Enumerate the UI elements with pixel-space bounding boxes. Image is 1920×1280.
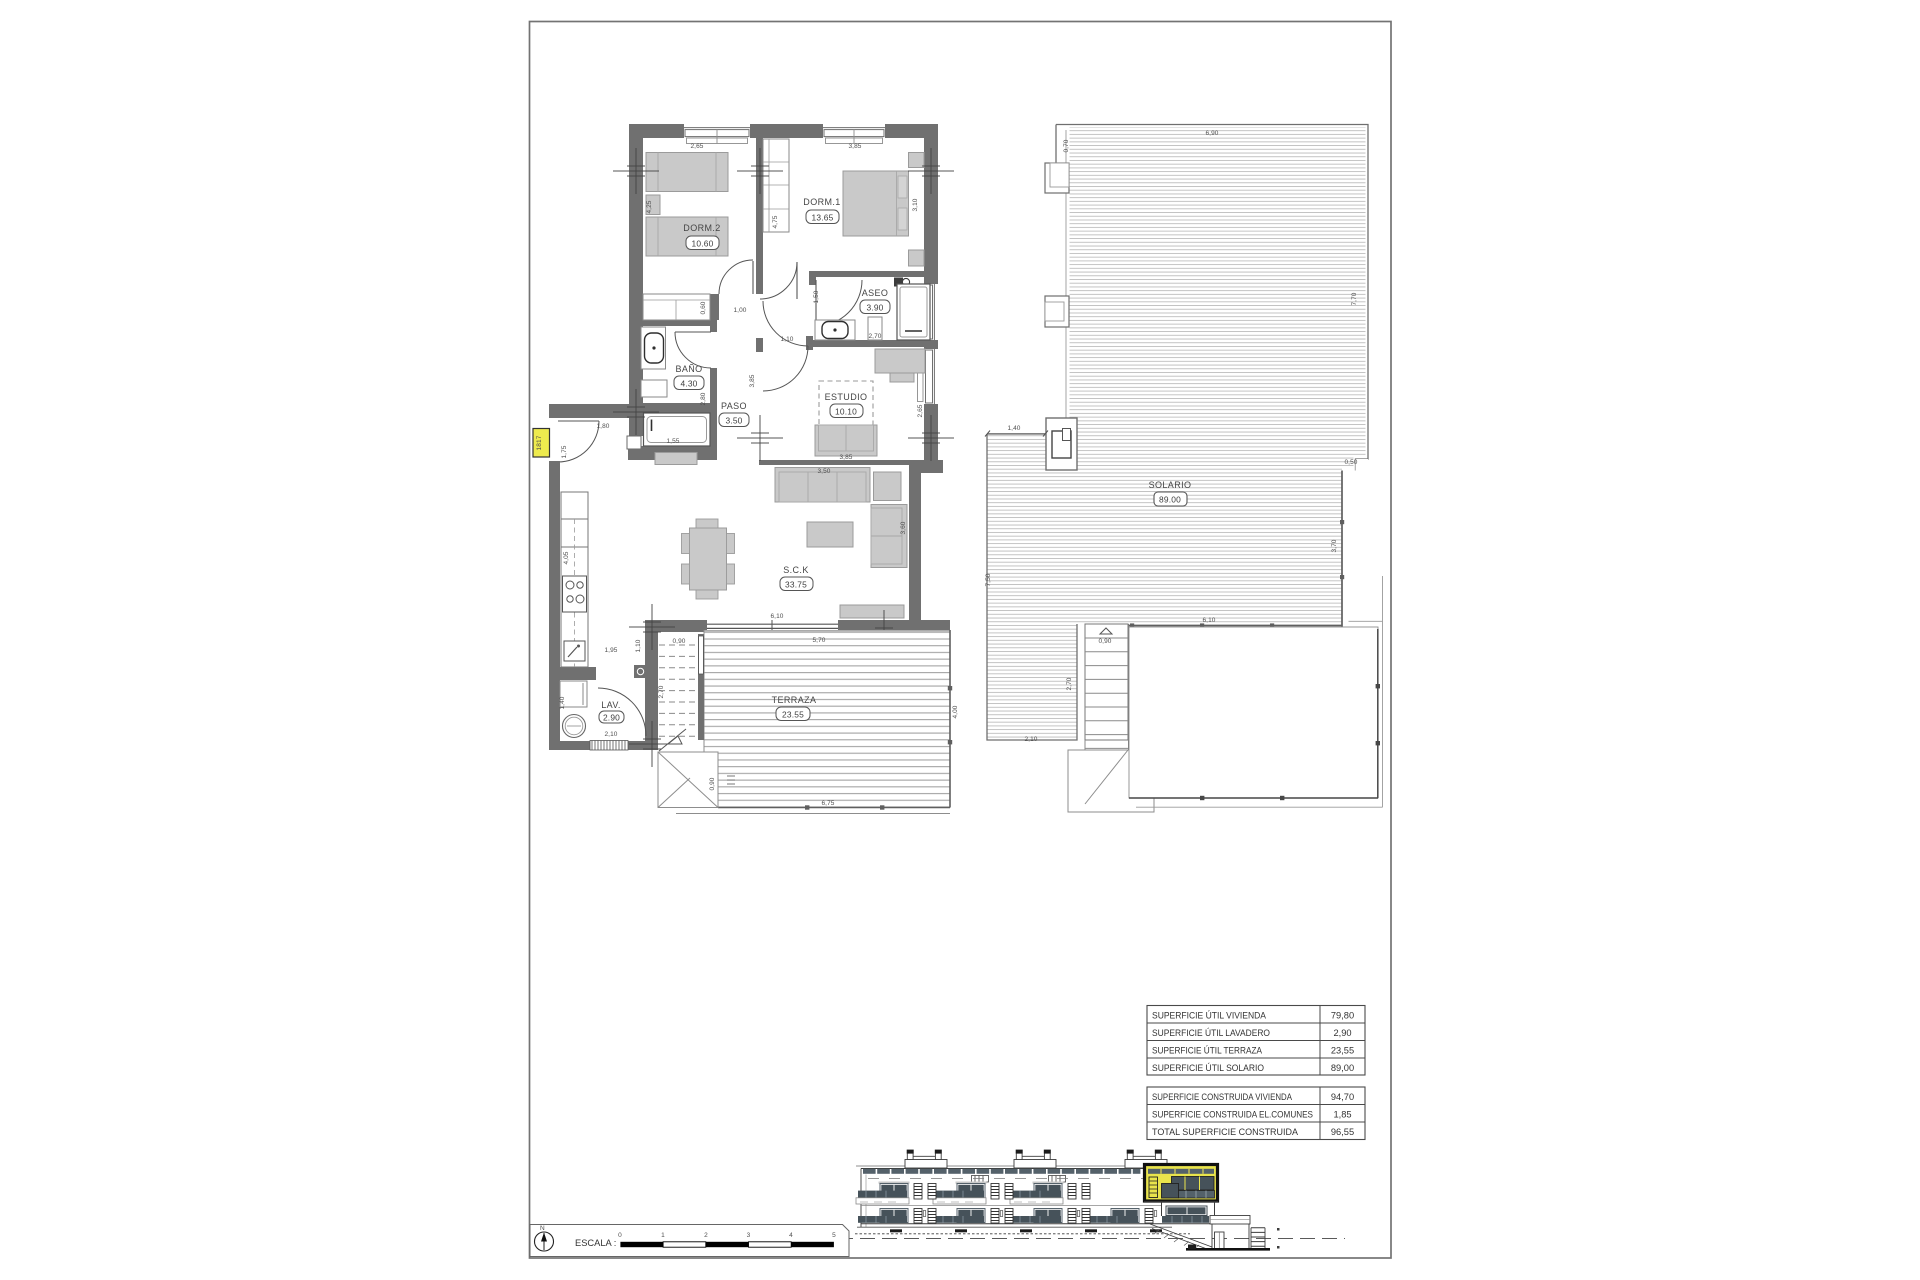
svg-text:3,10: 3,10 (912, 198, 919, 211)
svg-text:PASO: PASO (721, 401, 747, 411)
svg-text:3,85: 3,85 (848, 143, 861, 150)
svg-text:1,00: 1,00 (733, 307, 746, 314)
svg-text:4,75: 4,75 (772, 215, 779, 228)
svg-text:0,60: 0,60 (700, 301, 707, 314)
svg-text:5,70: 5,70 (812, 637, 825, 644)
svg-text:79,80: 79,80 (1331, 1011, 1354, 1021)
svg-text:0,70: 0,70 (1063, 139, 1070, 152)
svg-text:TOTAL SUPERFICIE CONSTRUIDA: TOTAL SUPERFICIE CONSTRUIDA (1152, 1127, 1299, 1137)
svg-text:ESTUDIO: ESTUDIO (825, 392, 868, 402)
svg-text:2,10: 2,10 (1024, 736, 1037, 743)
svg-text:SUPERFICIE ÚTIL LAVADERO: SUPERFICIE ÚTIL LAVADERO (1152, 1028, 1270, 1038)
svg-text:S.C.K: S.C.K (783, 565, 809, 575)
svg-text:2,70: 2,70 (1066, 677, 1073, 690)
svg-text:BAÑO: BAÑO (675, 364, 702, 374)
svg-text:7,50: 7,50 (985, 573, 992, 586)
svg-text:96,55: 96,55 (1331, 1127, 1354, 1137)
svg-text:1,95: 1,95 (604, 647, 617, 654)
svg-text:94,70: 94,70 (1331, 1092, 1354, 1102)
svg-text:DORM.2: DORM.2 (683, 223, 720, 233)
svg-text:0,90: 0,90 (1098, 638, 1111, 645)
svg-text:6,75: 6,75 (821, 800, 834, 807)
svg-text:LAV.: LAV. (601, 700, 621, 710)
svg-text:10.10: 10.10 (835, 407, 857, 417)
svg-text:1817: 1817 (536, 435, 543, 450)
svg-text:1,80: 1,80 (596, 423, 609, 430)
svg-text:2,80: 2,80 (700, 392, 707, 405)
svg-text:0,90: 0,90 (709, 777, 716, 790)
svg-text:89.00: 89.00 (1159, 495, 1181, 505)
svg-text:0: 0 (618, 1232, 622, 1239)
svg-text:ASEO: ASEO (862, 288, 889, 298)
svg-text:4,25: 4,25 (646, 200, 653, 213)
svg-text:10.60: 10.60 (692, 239, 714, 249)
svg-text:7,70: 7,70 (1351, 292, 1358, 305)
svg-text:2,90: 2,90 (1333, 1028, 1351, 1038)
svg-text:1,40: 1,40 (1007, 425, 1020, 432)
svg-text:2,70: 2,70 (658, 685, 665, 698)
svg-text:3,50: 3,50 (817, 468, 830, 475)
svg-text:DORM.1: DORM.1 (803, 197, 840, 207)
svg-text:3,85: 3,85 (839, 454, 852, 461)
svg-text:1,50: 1,50 (813, 290, 820, 303)
svg-text:2,65: 2,65 (690, 143, 703, 150)
svg-text:2,10: 2,10 (604, 731, 617, 738)
svg-text:ESCALA :: ESCALA : (575, 1238, 616, 1248)
svg-text:4: 4 (789, 1232, 793, 1239)
svg-text:0,90: 0,90 (672, 638, 685, 645)
svg-text:N: N (540, 1225, 545, 1232)
svg-text:TERRAZA: TERRAZA (772, 695, 817, 705)
svg-text:33.75: 33.75 (785, 580, 807, 590)
svg-text:6,90: 6,90 (1205, 130, 1218, 137)
svg-text:13.65: 13.65 (812, 213, 834, 223)
svg-text:SUPERFICIE ÚTIL TERRAZA: SUPERFICIE ÚTIL TERRAZA (1152, 1046, 1263, 1056)
svg-text:1,55: 1,55 (666, 438, 679, 445)
svg-text:2.90: 2.90 (603, 713, 620, 723)
svg-text:23,55: 23,55 (1331, 1046, 1354, 1056)
svg-text:5: 5 (832, 1232, 836, 1239)
svg-text:1,85: 1,85 (1333, 1110, 1351, 1120)
svg-text:23.55: 23.55 (782, 710, 804, 720)
svg-text:2,65: 2,65 (917, 404, 924, 417)
svg-text:6,10: 6,10 (1202, 617, 1215, 624)
svg-text:1,40: 1,40 (559, 696, 566, 709)
svg-text:3.50: 3.50 (725, 416, 742, 426)
svg-text:SOLARIO: SOLARIO (1149, 480, 1192, 490)
svg-text:SUPERFICIE CONSTRUIDA EL.COMUN: SUPERFICIE CONSTRUIDA EL.COMUNES (1152, 1110, 1313, 1120)
svg-text:3,70: 3,70 (1331, 539, 1338, 552)
svg-text:89,00: 89,00 (1331, 1063, 1354, 1073)
svg-text:6,10: 6,10 (770, 613, 783, 620)
svg-text:0,50: 0,50 (1344, 459, 1357, 466)
svg-text:1,10: 1,10 (635, 639, 642, 652)
svg-text:3,85: 3,85 (749, 374, 756, 387)
svg-text:3,60: 3,60 (900, 521, 907, 534)
svg-text:3.90: 3.90 (866, 303, 883, 313)
svg-text:1,10: 1,10 (780, 336, 793, 343)
svg-text:SUPERFICIE CONSTRUIDA VIVIENDA: SUPERFICIE CONSTRUIDA VIVIENDA (1152, 1092, 1293, 1102)
svg-text:4,00: 4,00 (952, 705, 959, 718)
svg-text:1,75: 1,75 (561, 445, 568, 458)
svg-text:2: 2 (704, 1232, 708, 1239)
svg-text:SUPERFICIE ÚTIL VIVIENDA: SUPERFICIE ÚTIL VIVIENDA (1152, 1011, 1267, 1021)
svg-text:SUPERFICIE ÚTIL SOLARIO: SUPERFICIE ÚTIL SOLARIO (1152, 1063, 1264, 1073)
svg-text:1: 1 (661, 1232, 665, 1239)
svg-text:3: 3 (747, 1232, 751, 1239)
svg-text:2,70: 2,70 (868, 333, 881, 340)
svg-text:4,05: 4,05 (563, 551, 570, 564)
svg-text:4.30: 4.30 (680, 379, 697, 389)
